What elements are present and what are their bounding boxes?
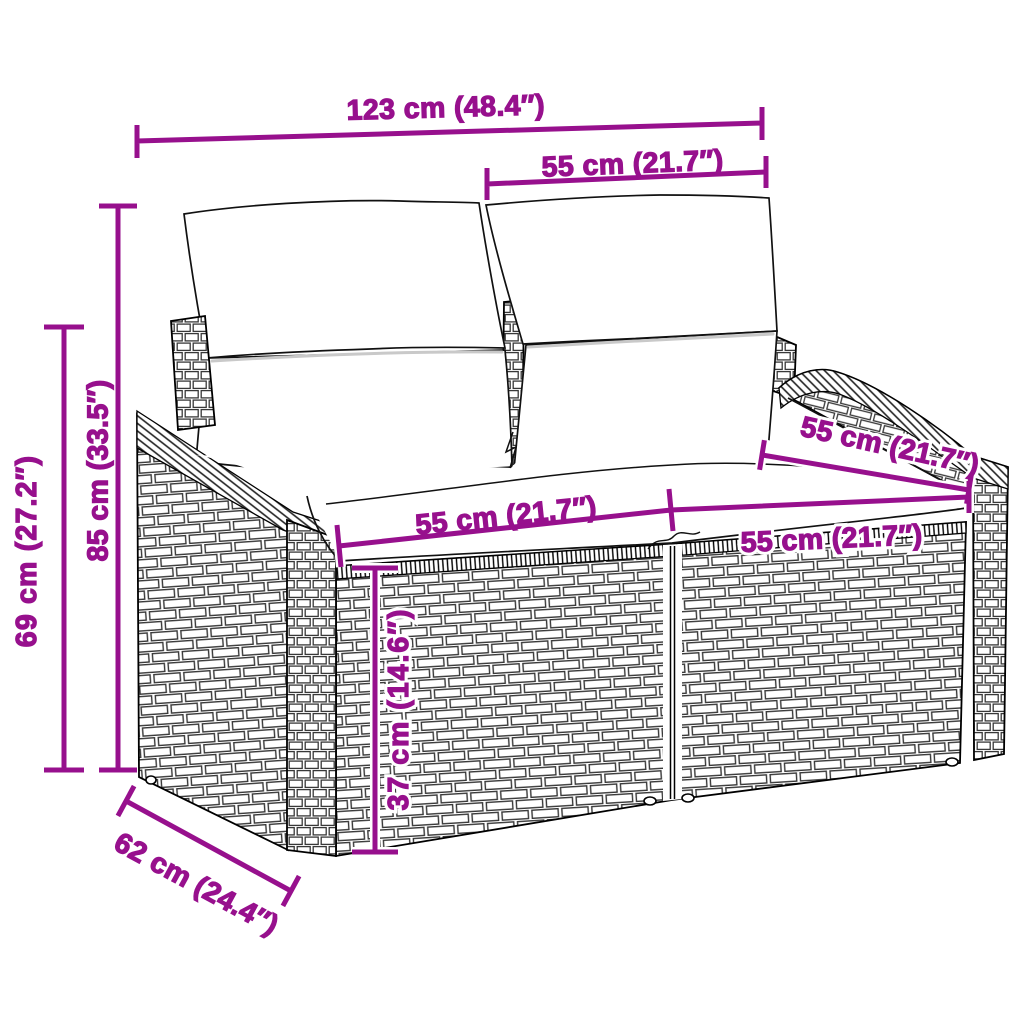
- svg-text:69 cm (27.2″): 69 cm (27.2″): [11, 455, 43, 647]
- svg-text:85 cm (33.5″): 85 cm (33.5″): [83, 379, 115, 561]
- svg-text:123 cm (48.4″): 123 cm (48.4″): [346, 89, 545, 127]
- svg-text:37 cm (14.6″): 37 cm (14.6″): [383, 608, 415, 811]
